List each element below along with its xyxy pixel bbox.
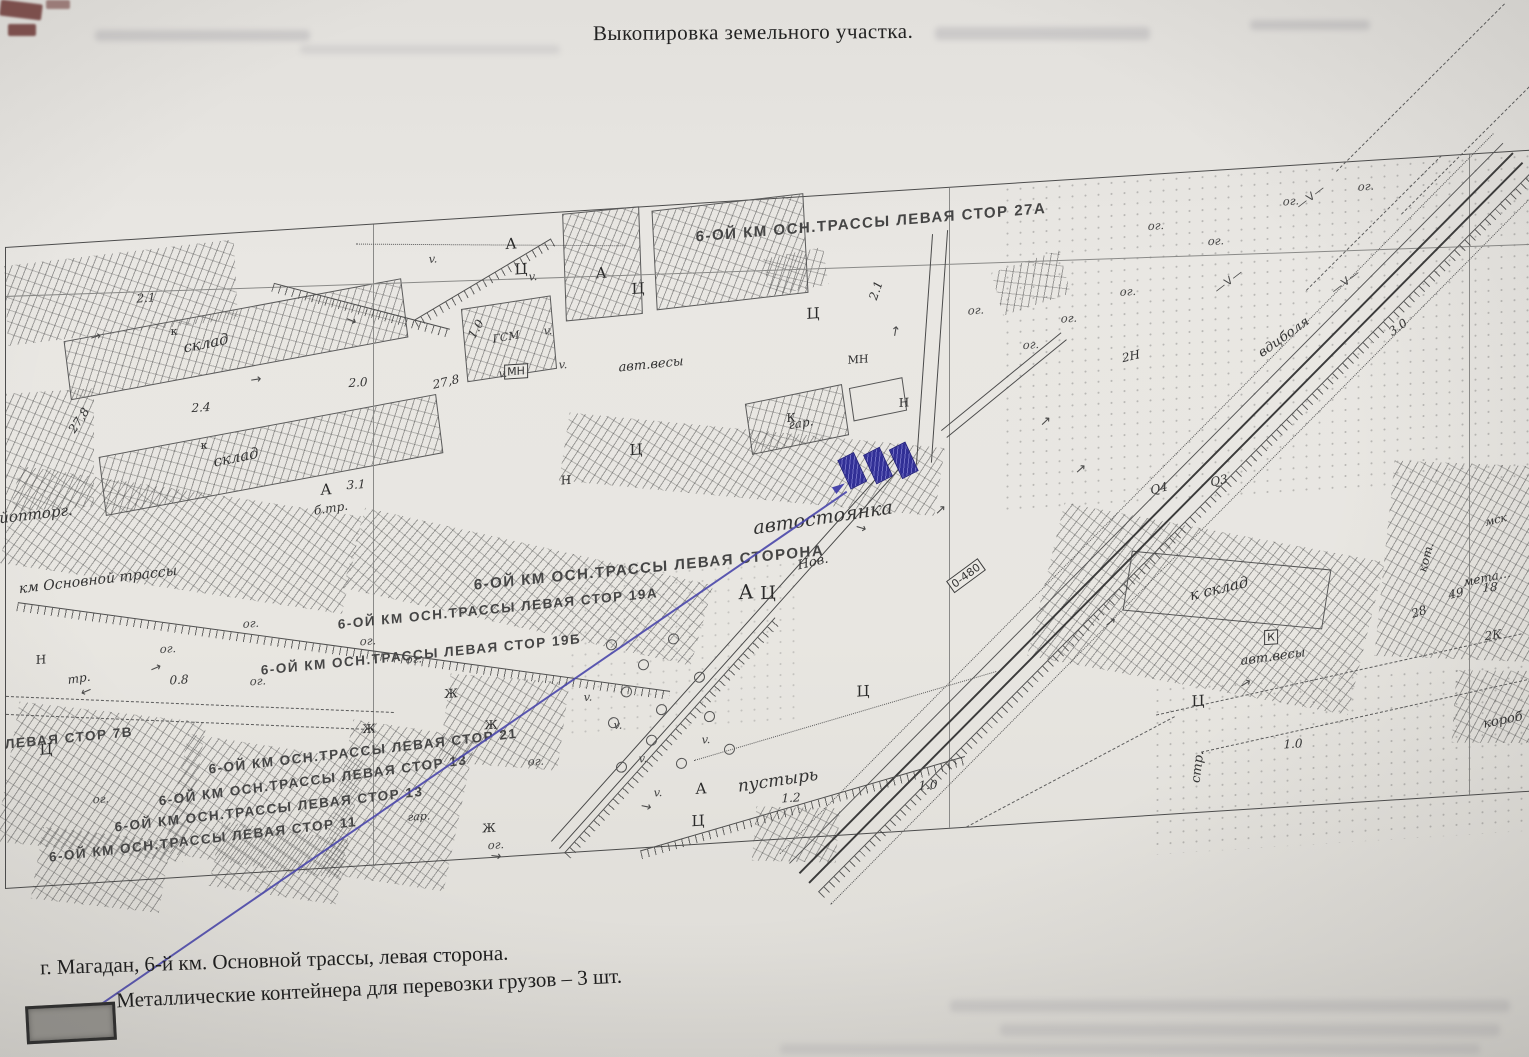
map-label: Ж: [482, 821, 495, 836]
cadastral-map: 6-ОЙ КМ ОСН.ТРАССЫ ЛЕВАЯ СТОР 27А6-ОЙ КМ…: [5, 148, 1529, 889]
map-label: А: [695, 779, 706, 798]
map-label: 1.2: [781, 790, 800, 805]
map-label: пустырь: [737, 765, 819, 797]
map-label: гар.: [408, 809, 431, 823]
map-label: 27,8: [66, 405, 93, 435]
map-label: Н: [36, 652, 46, 667]
map-label: 2.0: [348, 375, 367, 390]
map-label: А: [738, 579, 753, 604]
map-label: Ц: [856, 682, 869, 701]
map-label: 2.4: [191, 400, 210, 415]
map-label: йопторг.: [0, 501, 73, 527]
map-label: ог.: [1208, 233, 1224, 248]
map-label: МН: [504, 363, 528, 380]
map-label: —V—: [1329, 266, 1363, 297]
map-label: 2.1: [136, 290, 155, 305]
photo-stain: [8, 24, 36, 36]
ghost-text: [780, 1044, 1480, 1054]
map-label: ог.: [243, 616, 259, 631]
ghost-text: [300, 45, 560, 54]
survey-arrow: →: [250, 372, 262, 389]
survey-arrow: →: [343, 312, 359, 330]
map-label: ог.: [360, 633, 376, 648]
survey-arrow: →: [78, 682, 93, 700]
map-label: стр.: [1189, 750, 1208, 783]
map-label: к: [201, 439, 208, 452]
survey-arrow: →: [932, 501, 950, 519]
map-label: к: [171, 325, 178, 338]
tree-symbol: [616, 761, 627, 773]
map-label: Ц: [691, 811, 704, 830]
map-label: v.: [639, 751, 648, 766]
tree-symbol: [621, 686, 632, 698]
map-label: авт.весы: [618, 354, 683, 375]
map-label: К: [1264, 629, 1278, 645]
metal-container: [863, 447, 893, 485]
survey-arrow: →: [148, 659, 163, 677]
map-label: Q3: [1209, 472, 1229, 490]
map-label: 1.0: [465, 317, 487, 340]
survey-arrow: →: [1037, 412, 1055, 430]
ghost-text: [95, 30, 310, 41]
map-label: 1.0: [1283, 736, 1302, 751]
map-label: склад: [212, 444, 259, 471]
map-labels-layer: 6-ОЙ КМ ОСН.ТРАССЫ ЛЕВАЯ СТОР 27А6-ОЙ КМ…: [6, 149, 1529, 888]
metal-container: [889, 441, 919, 479]
map-label: А: [320, 480, 331, 499]
map-label: Н: [899, 395, 909, 410]
map-label: 18: [1482, 580, 1497, 595]
map-label: Н: [561, 473, 571, 488]
map-label: 2Н: [1121, 347, 1141, 365]
map-label: ог.: [1061, 311, 1077, 326]
map-label: v.: [529, 269, 538, 284]
map-label: 0-480: [946, 558, 986, 593]
map-label: ог.: [250, 673, 266, 688]
map-label: 2К: [1484, 627, 1502, 643]
map-label: Ж: [444, 686, 457, 701]
survey-arrow: →: [489, 849, 502, 865]
map-label: 1.0: [918, 778, 937, 793]
map-label: вдцболя: [1256, 314, 1312, 360]
map-label: —V—: [1294, 181, 1328, 212]
map-label: Ц: [806, 304, 819, 323]
tree-symbol: [704, 711, 715, 723]
map-label: авт.весы: [1240, 645, 1306, 669]
map-label: К: [786, 411, 795, 426]
map-label: Ц: [629, 440, 642, 459]
survey-arrow: →: [1072, 460, 1090, 478]
map-label: склад: [182, 330, 229, 357]
map-label: 3.1: [346, 477, 365, 492]
map-label: короб: [1482, 709, 1523, 732]
map-label: v.: [584, 690, 593, 705]
map-label: Ц: [760, 582, 776, 604]
map-label: ог.: [1358, 179, 1374, 194]
tree-symbol: [656, 704, 667, 716]
map-label: км Основной трассы: [19, 563, 178, 597]
map-label: кот.: [1415, 541, 1436, 573]
map-label: 6-ОЙ КМ ОСН.ТРАССЫ ЛЕВАЯ СТОР 19А: [338, 585, 659, 632]
map-label: ог.: [528, 754, 544, 769]
survey-arrow: →: [1102, 613, 1120, 632]
map-label: 49: [1447, 585, 1464, 602]
map-label: б.тр.: [313, 499, 348, 518]
map-label: 6-ОЙ КМ ОСН.ТРАССЫ ЛЕВАЯ СТОР 27А: [696, 200, 1047, 245]
map-label: v.: [559, 357, 568, 372]
tree-symbol: [668, 633, 679, 645]
map-label: ог.: [1148, 218, 1164, 233]
map-label: Ц: [514, 260, 527, 279]
map-label: 2.1: [866, 279, 886, 301]
map-label: ог.: [968, 303, 984, 318]
page-title: Выкопировка земельного участка.: [593, 19, 913, 46]
map-label: ог.: [160, 641, 176, 656]
map-label: Q4: [1149, 480, 1169, 498]
map-label: ог.: [93, 791, 109, 806]
tree-symbol: [694, 671, 705, 683]
map-label: А: [595, 264, 606, 283]
map-label: Ц: [39, 740, 52, 759]
map-label: ЛЕВАЯ СТОР 7В: [5, 724, 134, 752]
map-label: 28: [1410, 603, 1428, 621]
map-label: ог.: [406, 651, 422, 666]
survey-arrow: →: [888, 325, 905, 338]
map-label: А: [505, 234, 516, 253]
photo-stain: [0, 0, 43, 20]
ghost-text: [950, 1000, 1510, 1012]
map-label: Ц: [1191, 691, 1204, 710]
tree-symbol: [646, 734, 657, 746]
map-label: ГСМ: [492, 328, 520, 345]
map-label: v.: [544, 323, 553, 338]
map-label: ог.: [1023, 337, 1039, 352]
tree-symbol: [676, 757, 687, 769]
map-label: к склад: [1188, 573, 1249, 605]
map-label: 3.0: [1386, 316, 1410, 339]
map-label: ог.: [1120, 284, 1136, 299]
tree-symbol: [638, 659, 649, 671]
survey-arrow: →: [89, 328, 103, 346]
map-label: мск: [1484, 511, 1508, 529]
map-label: Ц: [631, 279, 644, 298]
ghost-text: [935, 27, 1150, 40]
map-label: v.: [499, 366, 508, 381]
ghost-text: [1250, 20, 1370, 30]
survey-arrow: →: [639, 799, 653, 816]
survey-arrow: →: [1238, 675, 1255, 694]
map-label: 0.8: [169, 672, 188, 687]
map-label: Ж: [362, 721, 375, 736]
tree-symbol: [724, 743, 735, 755]
photo-stain: [46, 0, 70, 9]
map-label: v.: [654, 785, 663, 800]
map-label: v.: [429, 251, 438, 266]
map-label: автостоянка: [752, 496, 893, 539]
map-label: —V—: [1212, 266, 1246, 297]
map-label: v.: [702, 732, 711, 747]
ghost-text: [1000, 1024, 1500, 1036]
map-label: МН: [848, 352, 869, 366]
photo-background: Выкопировка земельного участка.: [0, 0, 1529, 1057]
map-label: 27,8: [432, 372, 461, 392]
legend-container-symbol: [25, 1002, 117, 1045]
